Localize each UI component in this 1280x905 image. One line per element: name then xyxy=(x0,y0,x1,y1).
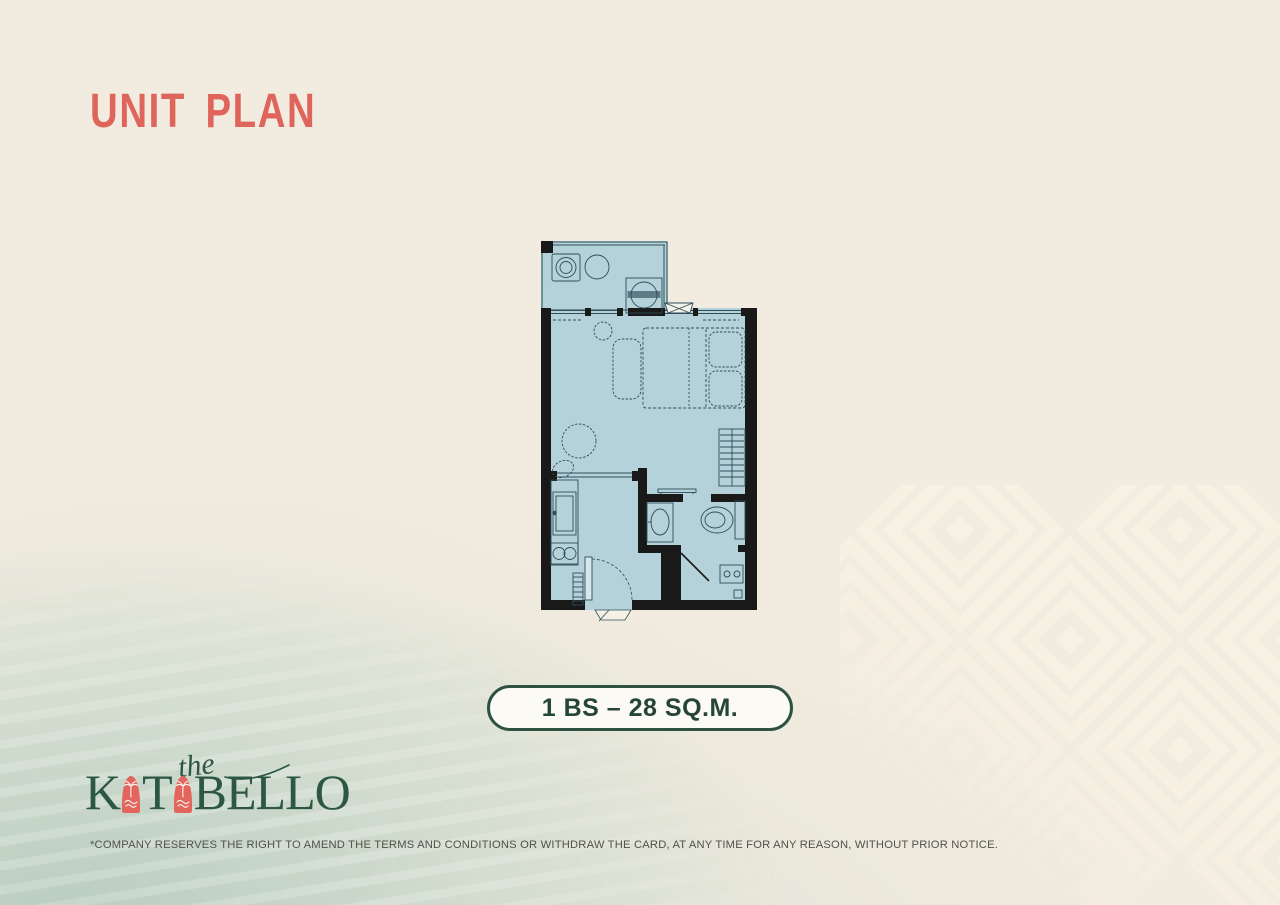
disclaimer-text: *COMPANY RESERVES THE RIGHT TO AMEND THE… xyxy=(90,839,998,851)
floor-plan-svg xyxy=(539,239,757,623)
logo-letters-bello: BELLO xyxy=(194,771,350,813)
surfboard-palm-icon xyxy=(174,776,192,813)
logo-wordmark: K T xyxy=(85,771,350,813)
unit-size-badge: 1 BS – 28 SQ.M. xyxy=(487,685,793,731)
logo-letter-t: T xyxy=(142,771,172,813)
logo-letter-k: K xyxy=(85,771,120,813)
floor-plan xyxy=(539,239,757,628)
ac-ledge xyxy=(665,303,693,313)
unit-plan-slide: UNIT PLAN xyxy=(0,0,1280,905)
katabello-logo: the K T xyxy=(85,745,345,825)
page-title: UNIT PLAN xyxy=(90,84,316,139)
surfboard-palm-icon xyxy=(122,776,140,813)
unit-size-label: 1 BS – 28 SQ.M. xyxy=(542,694,738,723)
